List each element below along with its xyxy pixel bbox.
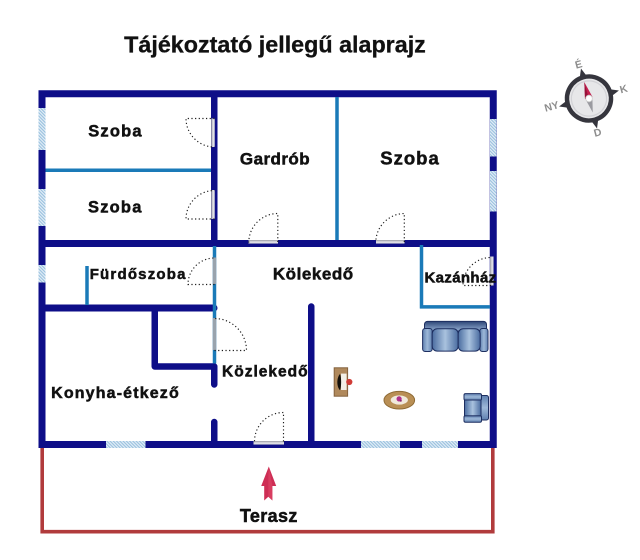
svg-text:Gardrób: Gardrób <box>240 149 310 168</box>
svg-text:K: K <box>619 83 630 97</box>
svg-text:Terasz: Terasz <box>240 506 298 526</box>
svg-text:Szoba: Szoba <box>380 147 439 168</box>
svg-text:D: D <box>593 126 604 140</box>
svg-text:Közlekedő: Közlekedő <box>222 364 309 381</box>
svg-text:Tájékoztató jellegű alaprajz: Tájékoztató jellegű alaprajz <box>124 32 426 58</box>
svg-text:Szoba: Szoba <box>88 123 143 141</box>
svg-text:Szoba: Szoba <box>88 198 143 216</box>
svg-text:É: É <box>574 57 584 71</box>
svg-text:Kölekedő: Kölekedő <box>273 265 354 284</box>
svg-text:NY: NY <box>543 99 560 114</box>
svg-text:Kazánház: Kazánház <box>425 270 497 287</box>
svg-text:Fürdőszoba: Fürdőszoba <box>90 266 187 283</box>
svg-text:Konyha-étkező: Konyha-étkező <box>51 385 180 402</box>
